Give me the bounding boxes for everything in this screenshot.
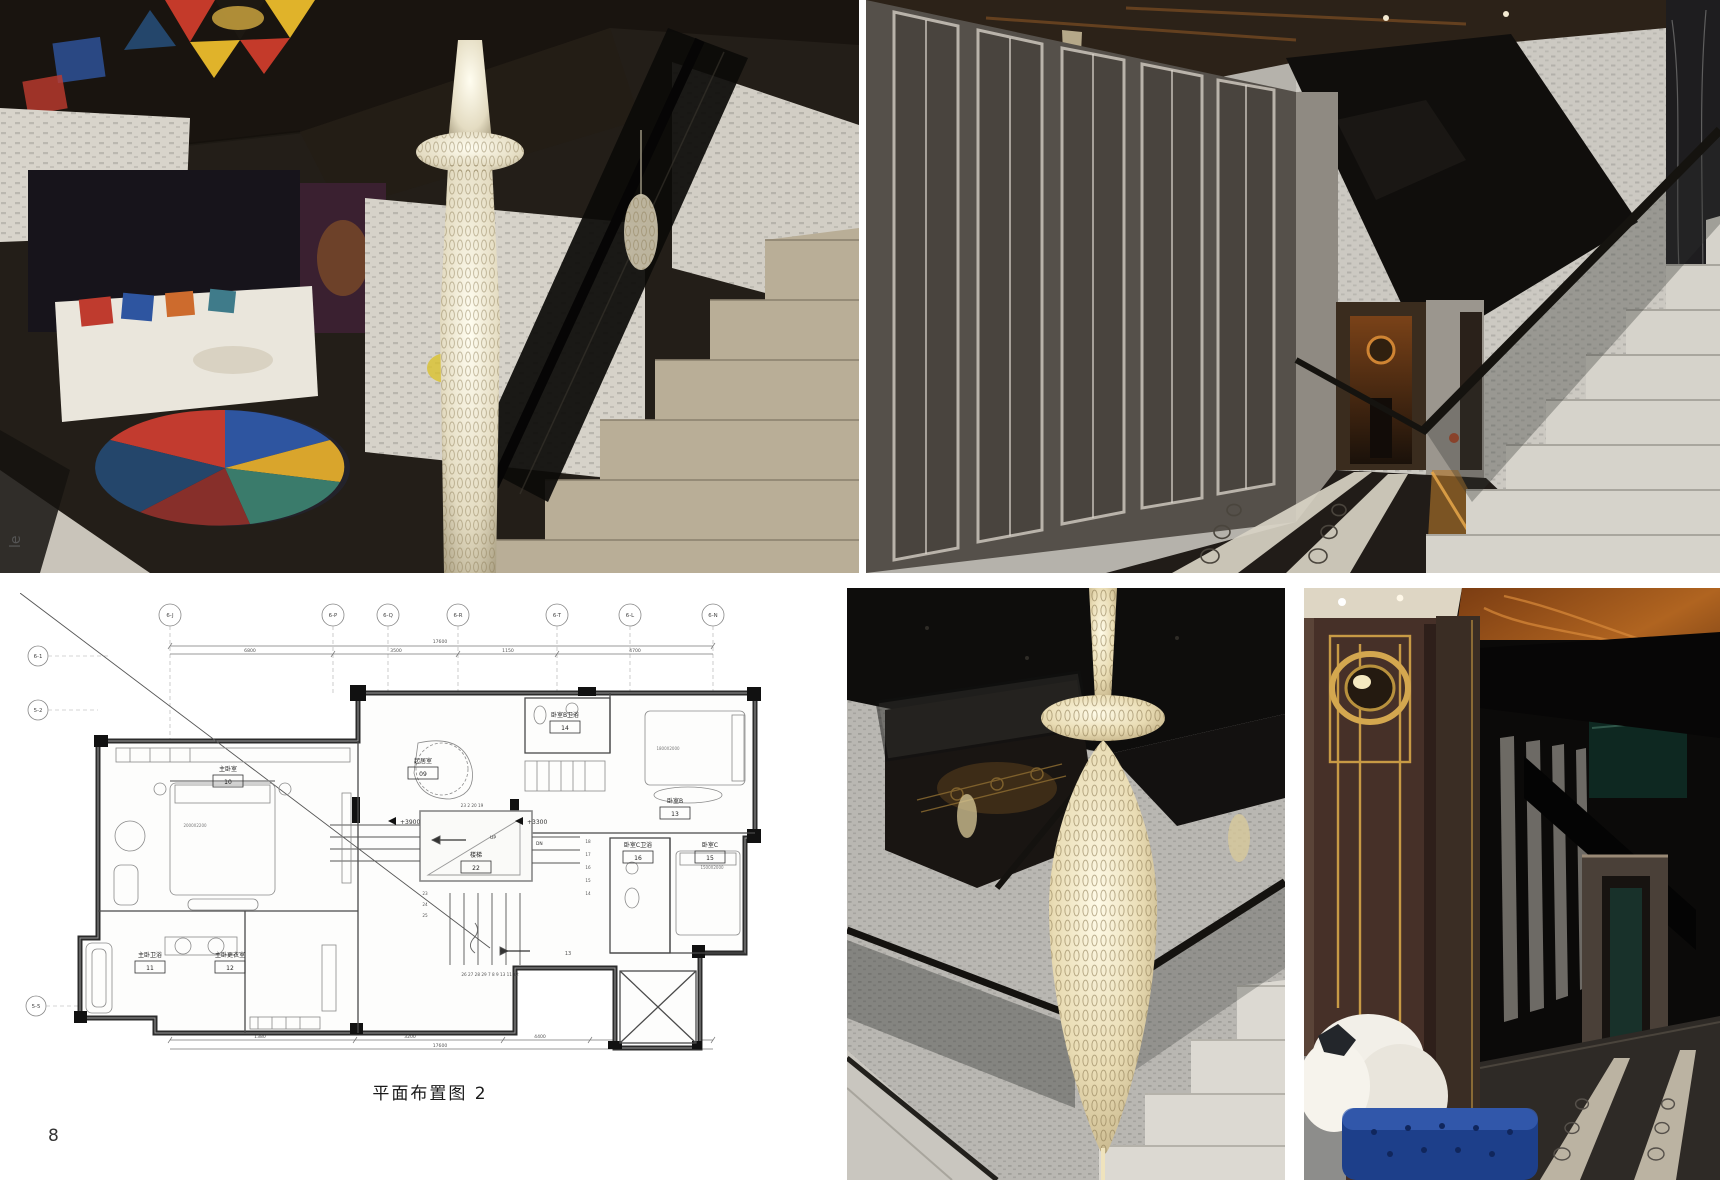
magazine-page: { "page": { "number": "8", "side_text": … (0, 0, 1720, 1180)
svg-text:5-5: 5-5 (32, 1004, 41, 1010)
svg-text:主卧更衣室: 主卧更衣室 (215, 951, 245, 959)
svg-text:6-Q: 6-Q (383, 613, 393, 619)
photo-stairwell-mirror-lounge-art (0, 0, 859, 573)
svg-text:6800: 6800 (244, 648, 256, 654)
photo-hallway-staircase (866, 0, 1720, 573)
svg-text:5-2: 5-2 (34, 708, 43, 714)
svg-text:6-J: 6-J (166, 613, 174, 619)
svg-text:+3300: +3300 (527, 819, 547, 826)
svg-text:卧室B: 卧室B (667, 797, 683, 805)
svg-text:主卧室: 主卧室 (219, 765, 237, 773)
svg-text:15: 15 (706, 855, 714, 862)
svg-text:17600: 17600 (433, 1043, 448, 1049)
corridor-end-doorway (1336, 302, 1426, 470)
svg-text:主卧卫浴: 主卧卫浴 (138, 951, 162, 959)
svg-text:24: 24 (422, 902, 428, 907)
wardrobe-wall (866, 0, 1296, 573)
svg-text:4400: 4400 (534, 1034, 546, 1040)
photo-hallway-ottoman (1304, 588, 1720, 1180)
svg-text:3500: 3500 (390, 648, 402, 654)
svg-text:25: 25 (422, 913, 428, 918)
svg-text:楼梯: 楼梯 (470, 851, 482, 859)
svg-text:23: 23 (422, 891, 428, 896)
svg-text:4700: 4700 (629, 648, 641, 654)
svg-text:26 27 28 29 7 8 9 13 11 12: 26 27 28 29 7 8 9 13 11 12 (461, 972, 519, 977)
svg-text:14: 14 (585, 891, 591, 896)
svg-text:2000X2200: 2000X2200 (183, 823, 207, 828)
svg-text:12: 12 (226, 965, 234, 972)
page-number: 8 (48, 1126, 59, 1146)
photo-hallway-ottoman-art (1304, 588, 1720, 1180)
svg-text:+3900: +3900 (400, 819, 420, 826)
svg-text:1800X2000: 1800X2000 (656, 746, 680, 751)
svg-text:17600: 17600 (433, 639, 448, 645)
floor-plan-drawing: 6-J 6-P 6-Q 6-R 6-T 6-L 6-N 6-1 5-2 5-5 (20, 593, 765, 1063)
geometric-rug-reflection (95, 410, 350, 526)
svg-text:22: 22 (472, 865, 480, 872)
floor-plan: 6-J 6-P 6-Q 6-R 6-T 6-L 6-N 6-1 5-2 5-5 (20, 593, 765, 1063)
svg-text:13: 13 (565, 951, 571, 957)
blue-tufted-ottoman (1342, 1108, 1538, 1180)
svg-text:16: 16 (634, 855, 642, 862)
photo-chandelier-stairwell (847, 588, 1285, 1180)
photo-hallway-staircase-art (866, 0, 1720, 573)
svg-text:1500X2000: 1500X2000 (700, 865, 724, 870)
photo-stairwell-mirror-lounge (0, 0, 859, 573)
svg-text:15: 15 (585, 878, 591, 883)
svg-text:23 2 20 19: 23 2 20 19 (461, 803, 484, 808)
svg-text:16: 16 (585, 865, 591, 870)
svg-text:1150: 1150 (502, 648, 514, 654)
svg-text:11: 11 (146, 965, 154, 972)
svg-text:09: 09 (419, 771, 427, 778)
svg-text:DN: DN (536, 841, 543, 847)
gold-chandelier-reflection (212, 6, 264, 30)
svg-text:卧室C: 卧室C (702, 841, 718, 849)
svg-text:起居室: 起居室 (414, 757, 432, 765)
svg-text:6-R: 6-R (453, 613, 462, 619)
svg-text:10: 10 (224, 779, 232, 786)
svg-text:UP: UP (490, 835, 496, 841)
side-crop-text: le (8, 535, 24, 548)
svg-text:卧室C卫浴: 卧室C卫浴 (624, 841, 652, 849)
svg-text:14: 14 (561, 725, 569, 732)
plan-caption: 平面布置图 2 (330, 1079, 530, 1104)
svg-text:6-L: 6-L (626, 613, 634, 619)
svg-text:17: 17 (585, 852, 591, 857)
svg-text:18: 18 (585, 839, 591, 844)
photo-chandelier-stairwell-art (847, 588, 1285, 1180)
svg-text:6-N: 6-N (708, 613, 717, 619)
svg-text:卧室B卫浴: 卧室B卫浴 (551, 711, 579, 719)
svg-text:6-T: 6-T (553, 613, 562, 619)
svg-text:6-1: 6-1 (34, 654, 43, 660)
svg-text:13: 13 (671, 811, 679, 818)
svg-text:6-P: 6-P (329, 613, 338, 619)
